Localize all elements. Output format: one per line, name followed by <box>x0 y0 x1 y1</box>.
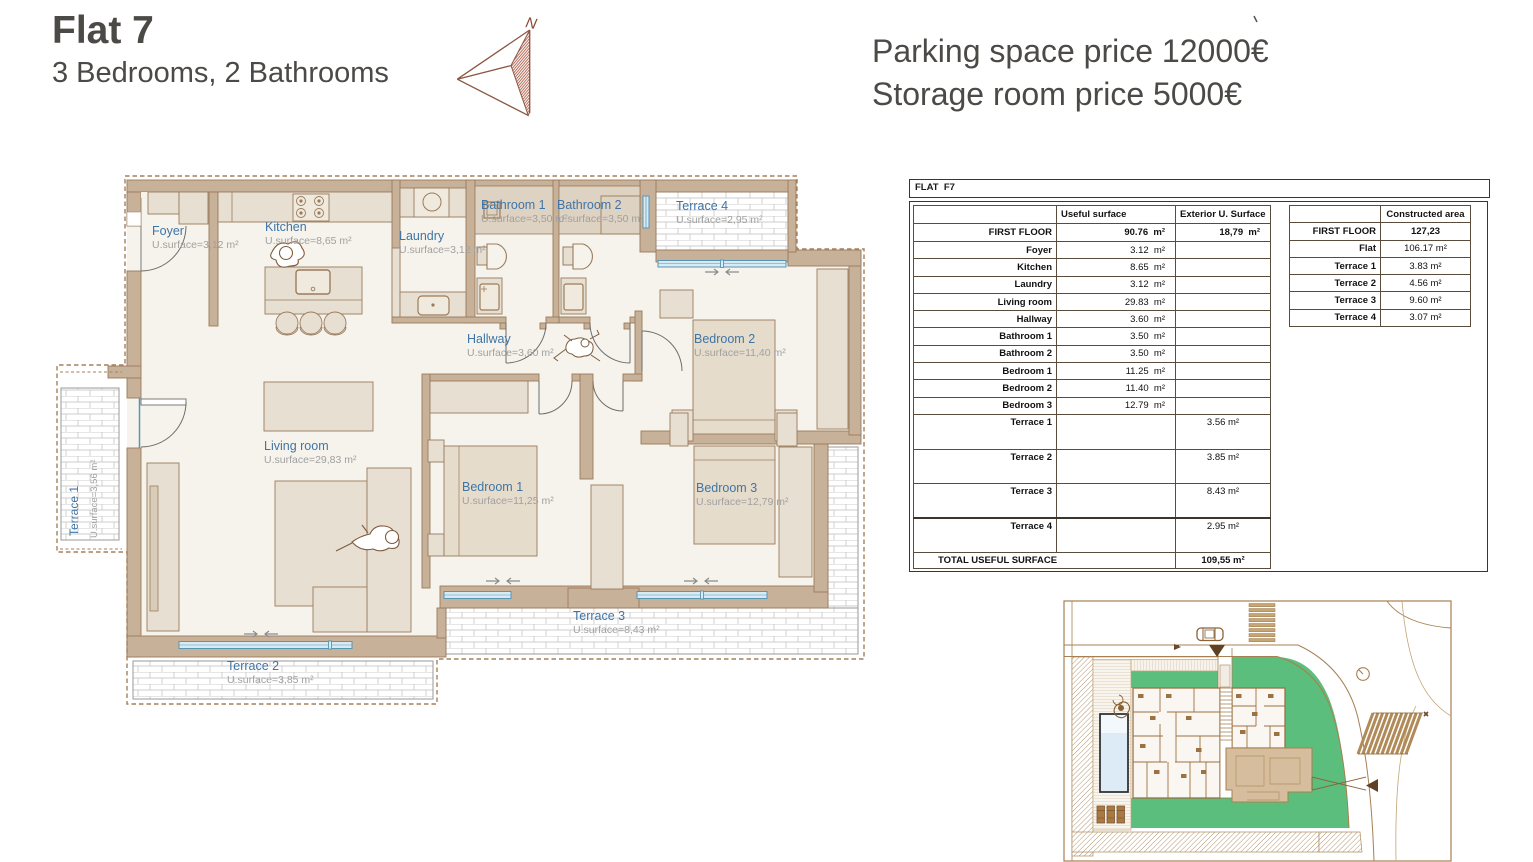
svg-text:U.surface=2,95 m²: U.surface=2,95 m² <box>676 214 763 226</box>
svg-text:U.surface=3,50 m²: U.surface=3,50 m² <box>557 213 644 225</box>
svg-text:U.surface=29,83 m²: U.surface=29,83 m² <box>264 454 357 466</box>
svg-text:Terrace 3: Terrace 3 <box>573 609 625 623</box>
svg-text:Terrace 4: Terrace 4 <box>676 199 728 213</box>
svg-text:Living room: Living room <box>264 439 329 453</box>
svg-text:U.surface=11,25 m²: U.surface=11,25 m² <box>462 495 554 507</box>
svg-text:Hallway: Hallway <box>467 332 512 346</box>
svg-text:Bathroom 2: Bathroom 2 <box>557 198 622 212</box>
svg-text:Laundry: Laundry <box>399 229 445 243</box>
svg-text:U.surface=3,60 m²: U.surface=3,60 m² <box>467 347 554 359</box>
svg-text:Terrace 2: Terrace 2 <box>227 659 279 673</box>
svg-text:Bathroom 1: Bathroom 1 <box>481 198 546 212</box>
svg-text:Bedroom 2: Bedroom 2 <box>694 332 755 346</box>
svg-text:Foyer: Foyer <box>152 224 184 238</box>
svg-text:U.surface=8,43 m²: U.surface=8,43 m² <box>573 624 660 636</box>
svg-text:U.surface=3,12 m²: U.surface=3,12 m² <box>399 244 486 256</box>
svg-text:U.surface=8,65 m²: U.surface=8,65 m² <box>265 235 352 247</box>
svg-text:Kitchen: Kitchen <box>265 220 307 234</box>
svg-text:U.surface=3,56 m²: U.surface=3,56 m² <box>89 460 100 538</box>
svg-text:Bedroom 3: Bedroom 3 <box>696 481 757 495</box>
svg-text:U.surface=11,40 m²: U.surface=11,40 m² <box>694 347 786 359</box>
svg-text:U.surface=12,79 m²: U.surface=12,79 m² <box>696 496 789 508</box>
svg-text:Terrace 1: Terrace 1 <box>67 486 81 536</box>
svg-text:N: N <box>524 14 538 33</box>
svg-text:U.surface=3,50 m²: U.surface=3,50 m² <box>481 213 568 225</box>
svg-text:Bedroom 1: Bedroom 1 <box>462 480 523 494</box>
svg-text:U.surface=3,85 m²: U.surface=3,85 m² <box>227 674 314 686</box>
svg-text:U.surface=3,12 m²: U.surface=3,12 m² <box>152 239 239 251</box>
